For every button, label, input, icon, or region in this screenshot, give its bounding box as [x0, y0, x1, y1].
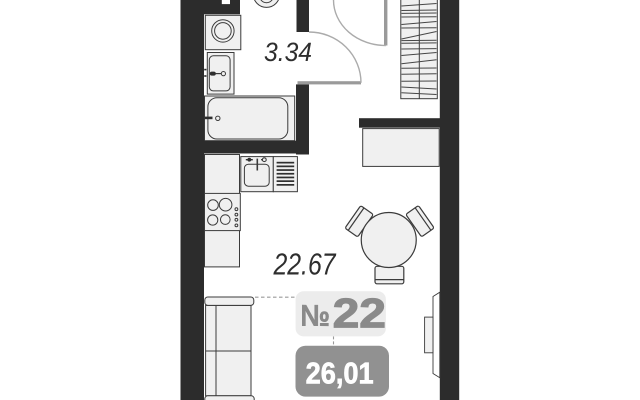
svg-text:22.67: 22.67 [273, 247, 337, 281]
svg-text:26,01: 26,01 [306, 357, 374, 390]
svg-text:3.34: 3.34 [264, 37, 312, 67]
svg-text:№: № [300, 300, 330, 333]
svg-text:22: 22 [333, 289, 386, 336]
